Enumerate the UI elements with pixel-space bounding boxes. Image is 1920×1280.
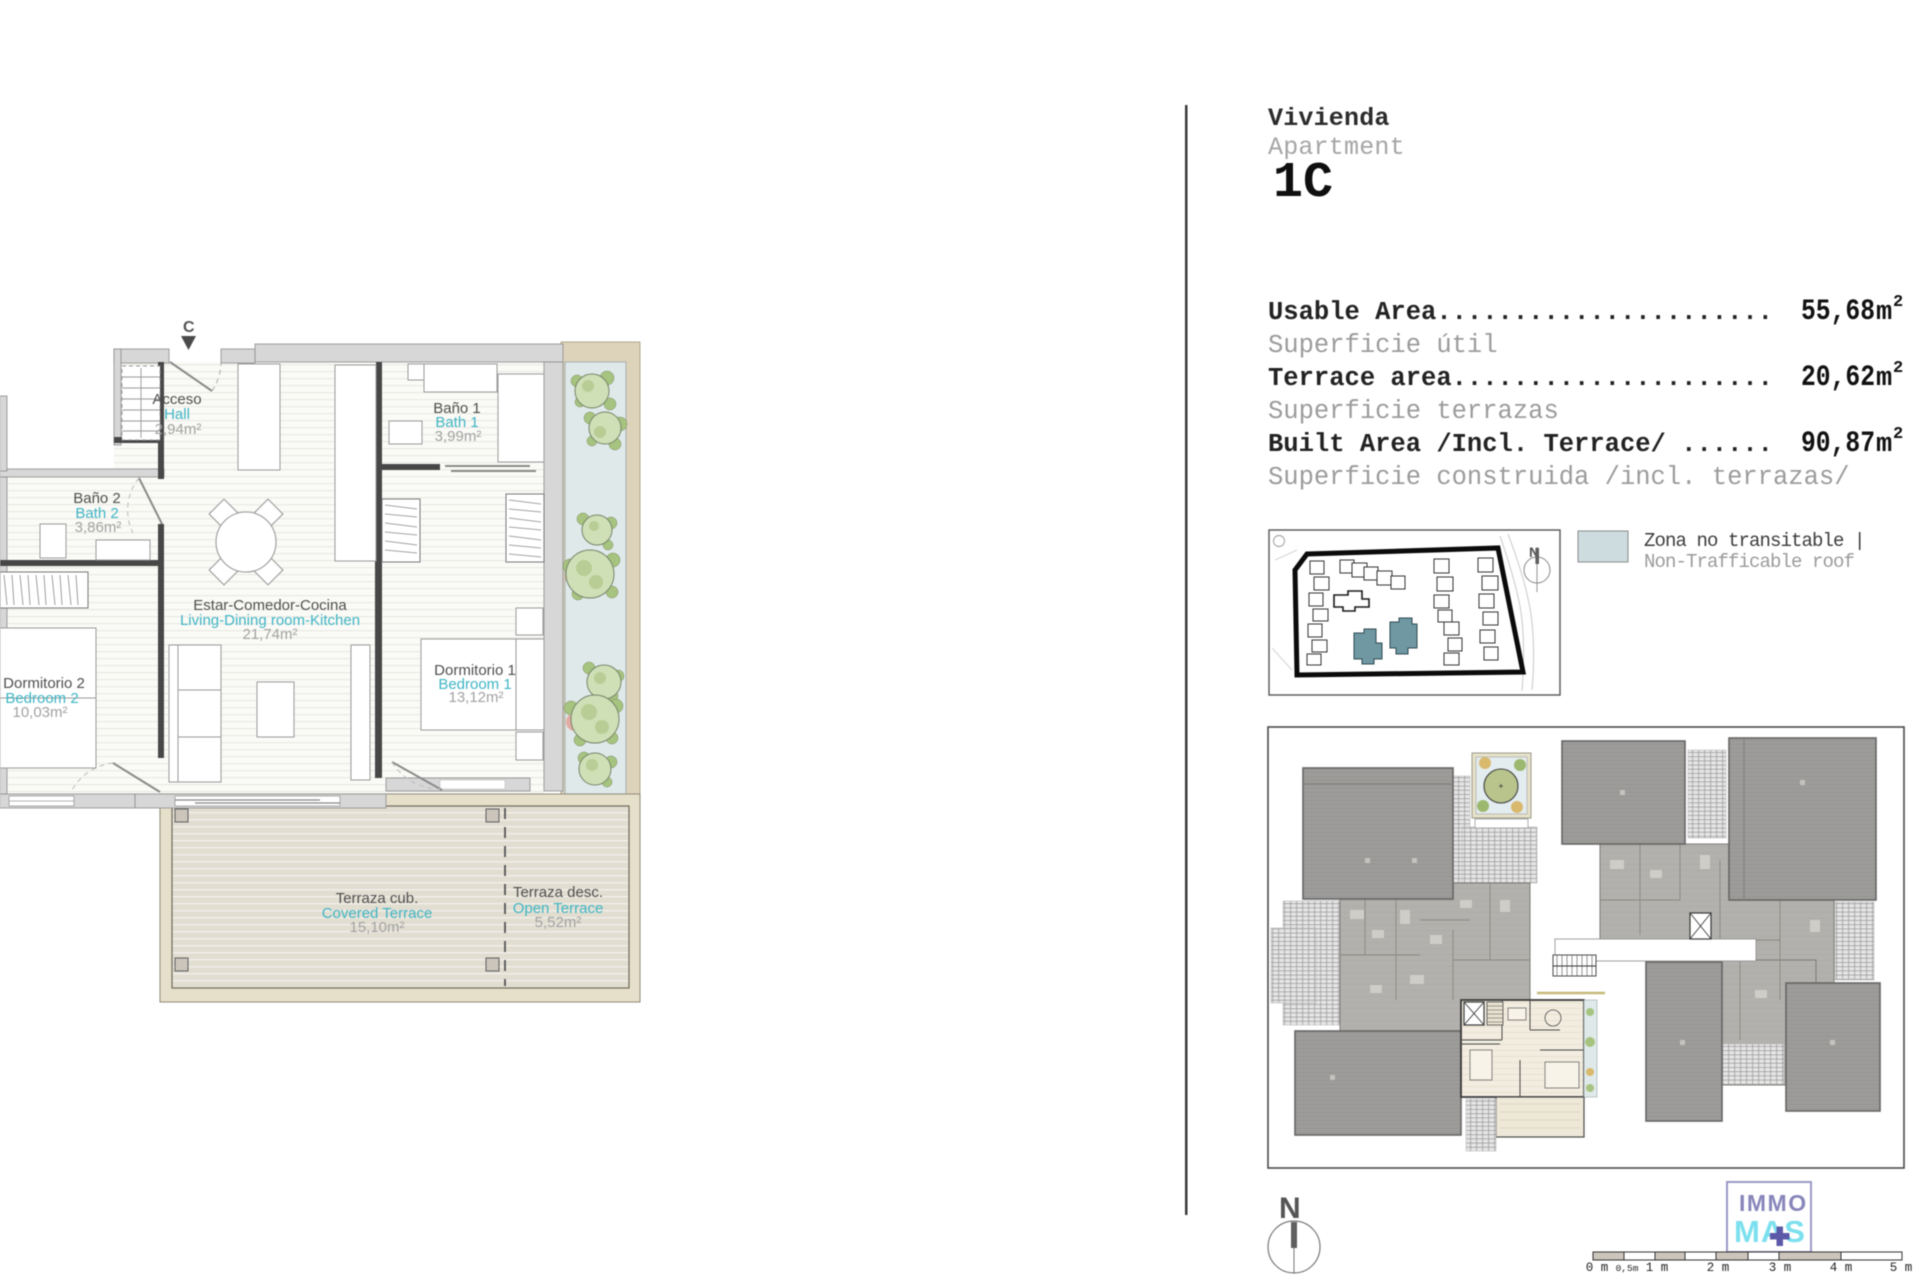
svg-text:Terrace area..................: Terrace area..................... [1268,364,1773,393]
svg-text:m: m [1876,364,1892,394]
svg-text:2,94m²: 2,94m² [155,421,202,438]
svg-text:2 m: 2 m [1707,1261,1730,1275]
svg-text:Zona no transitable |: Zona no transitable | [1644,530,1865,552]
svg-text:15,10m²: 15,10m² [349,919,404,936]
svg-text:Vivienda: Vivienda [1268,104,1390,133]
svg-text:MAS: MAS [1734,1214,1806,1249]
svg-text:2: 2 [1893,293,1903,312]
svg-text:3 m: 3 m [1769,1261,1792,1275]
svg-text:m: m [1876,430,1892,460]
svg-text:13,12m²: 13,12m² [448,689,503,706]
svg-text:1 m: 1 m [1646,1261,1669,1275]
svg-text:Superficie útil: Superficie útil [1268,331,1498,360]
svg-text:IMMO: IMMO [1739,1190,1808,1216]
svg-text:2: 2 [1893,359,1903,378]
svg-text:20,62: 20,62 [1801,361,1875,395]
svg-text:10,03m²: 10,03m² [12,704,67,721]
svg-text:21,74m²: 21,74m² [242,626,297,643]
svg-text:1C: 1C [1273,155,1333,212]
svg-text:Usable Area...................: Usable Area...................... [1268,298,1773,327]
svg-text:Non-Trafficable roof: Non-Trafficable roof [1644,551,1855,573]
svg-text:2: 2 [1893,425,1903,444]
svg-text:0 m: 0 m [1586,1261,1609,1275]
svg-text:5,52m²: 5,52m² [535,914,582,931]
svg-text:0,5m: 0,5m [1616,1263,1639,1274]
svg-text:90,87: 90,87 [1801,427,1875,461]
svg-text:3,99m²: 3,99m² [435,428,482,445]
svg-text:3,86m²: 3,86m² [75,519,122,536]
svg-text:m: m [1876,298,1892,328]
svg-text:Superficie terrazas: Superficie terrazas [1268,397,1559,426]
svg-text:Terraza desc.: Terraza desc. [513,884,603,901]
svg-text:Built Area /Incl. Terrace/ ...: Built Area /Incl. Terrace/ ...... [1268,430,1773,459]
svg-text:C: C [183,319,195,336]
svg-text:4 m: 4 m [1830,1261,1853,1275]
svg-text:5 m: 5 m [1890,1261,1913,1275]
svg-text:55,68: 55,68 [1801,295,1875,329]
svg-text:N: N [1279,1192,1301,1225]
svg-text:Superficie construida /incl. t: Superficie construida /incl. terrazas/ [1268,463,1850,492]
